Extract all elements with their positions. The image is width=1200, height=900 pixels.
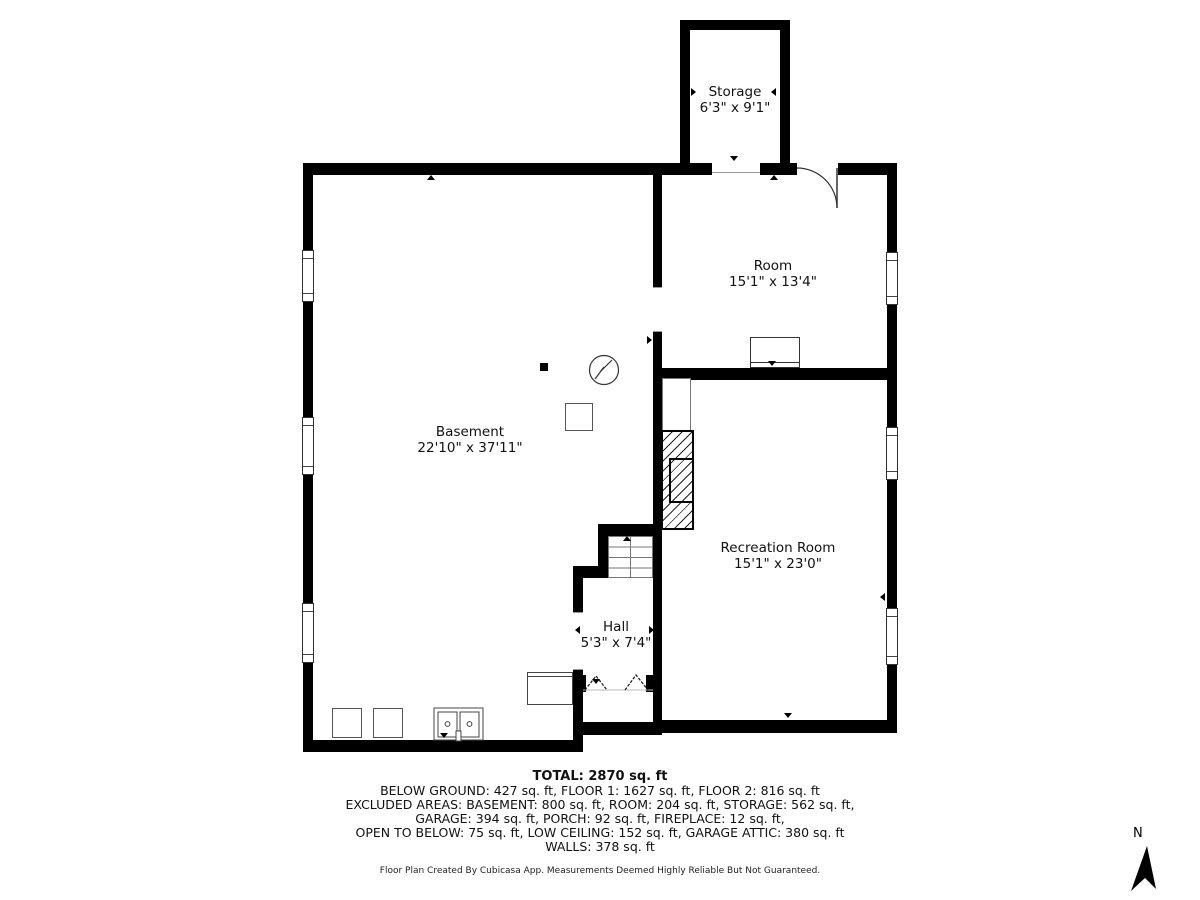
summary-line: OPEN TO BELOW: 75 sq. ft, LOW CEILING: 1… (0, 826, 1200, 840)
stairs (608, 536, 653, 578)
room-name: Storage (655, 84, 815, 100)
room-dims: 5'3" x 7'4" (556, 635, 676, 651)
water-heater-icon (587, 353, 621, 387)
appliance-dryer (373, 708, 403, 738)
room-dims: 15'1" x 13'4" (693, 274, 853, 290)
doorway-basement-room (653, 287, 662, 332)
doorway-edge (653, 331, 662, 332)
room-label-hall: Hall 5'3" x 7'4" (556, 619, 676, 651)
summary-line: EXCLUDED AREAS: BASEMENT: 800 sq. ft, RO… (0, 798, 1200, 812)
appliance-washer (332, 708, 362, 738)
room-name: Basement (390, 424, 550, 440)
room-dims: 22'10" x 37'11" (390, 440, 550, 456)
room-label-basement: Basement 22'10" x 37'11" (390, 424, 550, 456)
door-arc-icon (790, 160, 850, 220)
measure-tick (647, 336, 652, 344)
measure-tick (770, 175, 778, 180)
wall-storage-top (680, 20, 790, 30)
window-left-2 (302, 417, 314, 475)
room-name: Room (693, 258, 853, 274)
summary-line: WALLS: 378 sq. ft (0, 840, 1200, 854)
room-name: Recreation Room (678, 540, 878, 556)
window-right-1 (886, 252, 898, 305)
storage-doorway-threshold (712, 172, 760, 173)
total-area: TOTAL: 2870 sq. ft (0, 770, 1200, 784)
utility-box (565, 403, 593, 431)
cabinet (527, 672, 573, 705)
fireplace-flue (662, 378, 691, 431)
window-left-3 (302, 603, 314, 663)
room-name: Hall (556, 619, 676, 635)
support-post (540, 363, 548, 371)
doorway-edge (653, 287, 662, 288)
cabinet-line (528, 676, 572, 677)
north-arrow-icon (1115, 826, 1165, 896)
summary-line: GARAGE: 394 sq. ft, PORCH: 92 sq. ft, FI… (0, 812, 1200, 826)
north-compass: N (1115, 826, 1165, 896)
room-label-storage: Storage 6'3" x 9'1" (655, 84, 815, 116)
room-label-room: Room 15'1" x 13'4" (693, 258, 853, 290)
doorway-edge (573, 612, 583, 613)
window-right-3 (886, 608, 898, 665)
stairs-up-arrow (623, 536, 631, 541)
window-left-1 (302, 250, 314, 302)
measure-tick (768, 361, 776, 366)
wall-top-left-segment (303, 163, 712, 175)
area-summary: TOTAL: 2870 sq. ft BELOW GROUND: 427 sq.… (0, 770, 1200, 854)
wall-rec-bottom (653, 720, 897, 733)
measure-tick (308, 343, 313, 351)
measure-tick (784, 713, 792, 718)
wall-vestibule-bottom (573, 722, 662, 735)
credit-note: Floor Plan Created By Cubicasa App. Meas… (0, 866, 1200, 876)
summary-line: BELOW GROUND: 427 sq. ft, FLOOR 1: 1627 … (0, 784, 1200, 798)
measure-tick (730, 156, 738, 161)
measure-tick (440, 733, 448, 738)
room-label-recreation: Recreation Room 15'1" x 23'0" (678, 540, 878, 572)
window-right-2 (886, 427, 898, 480)
measure-tick (592, 679, 600, 684)
room-dims: 15'1" x 23'0" (678, 556, 878, 572)
fireplace-firebox (669, 458, 694, 503)
floor-plan-page: Storage 6'3" x 9'1" Room 15'1" x 13'4" B… (0, 0, 1200, 900)
measure-tick (880, 593, 885, 601)
wall-room-rec-divider (662, 368, 897, 380)
measure-tick (427, 175, 435, 180)
room-dims: 6'3" x 9'1" (655, 100, 815, 116)
